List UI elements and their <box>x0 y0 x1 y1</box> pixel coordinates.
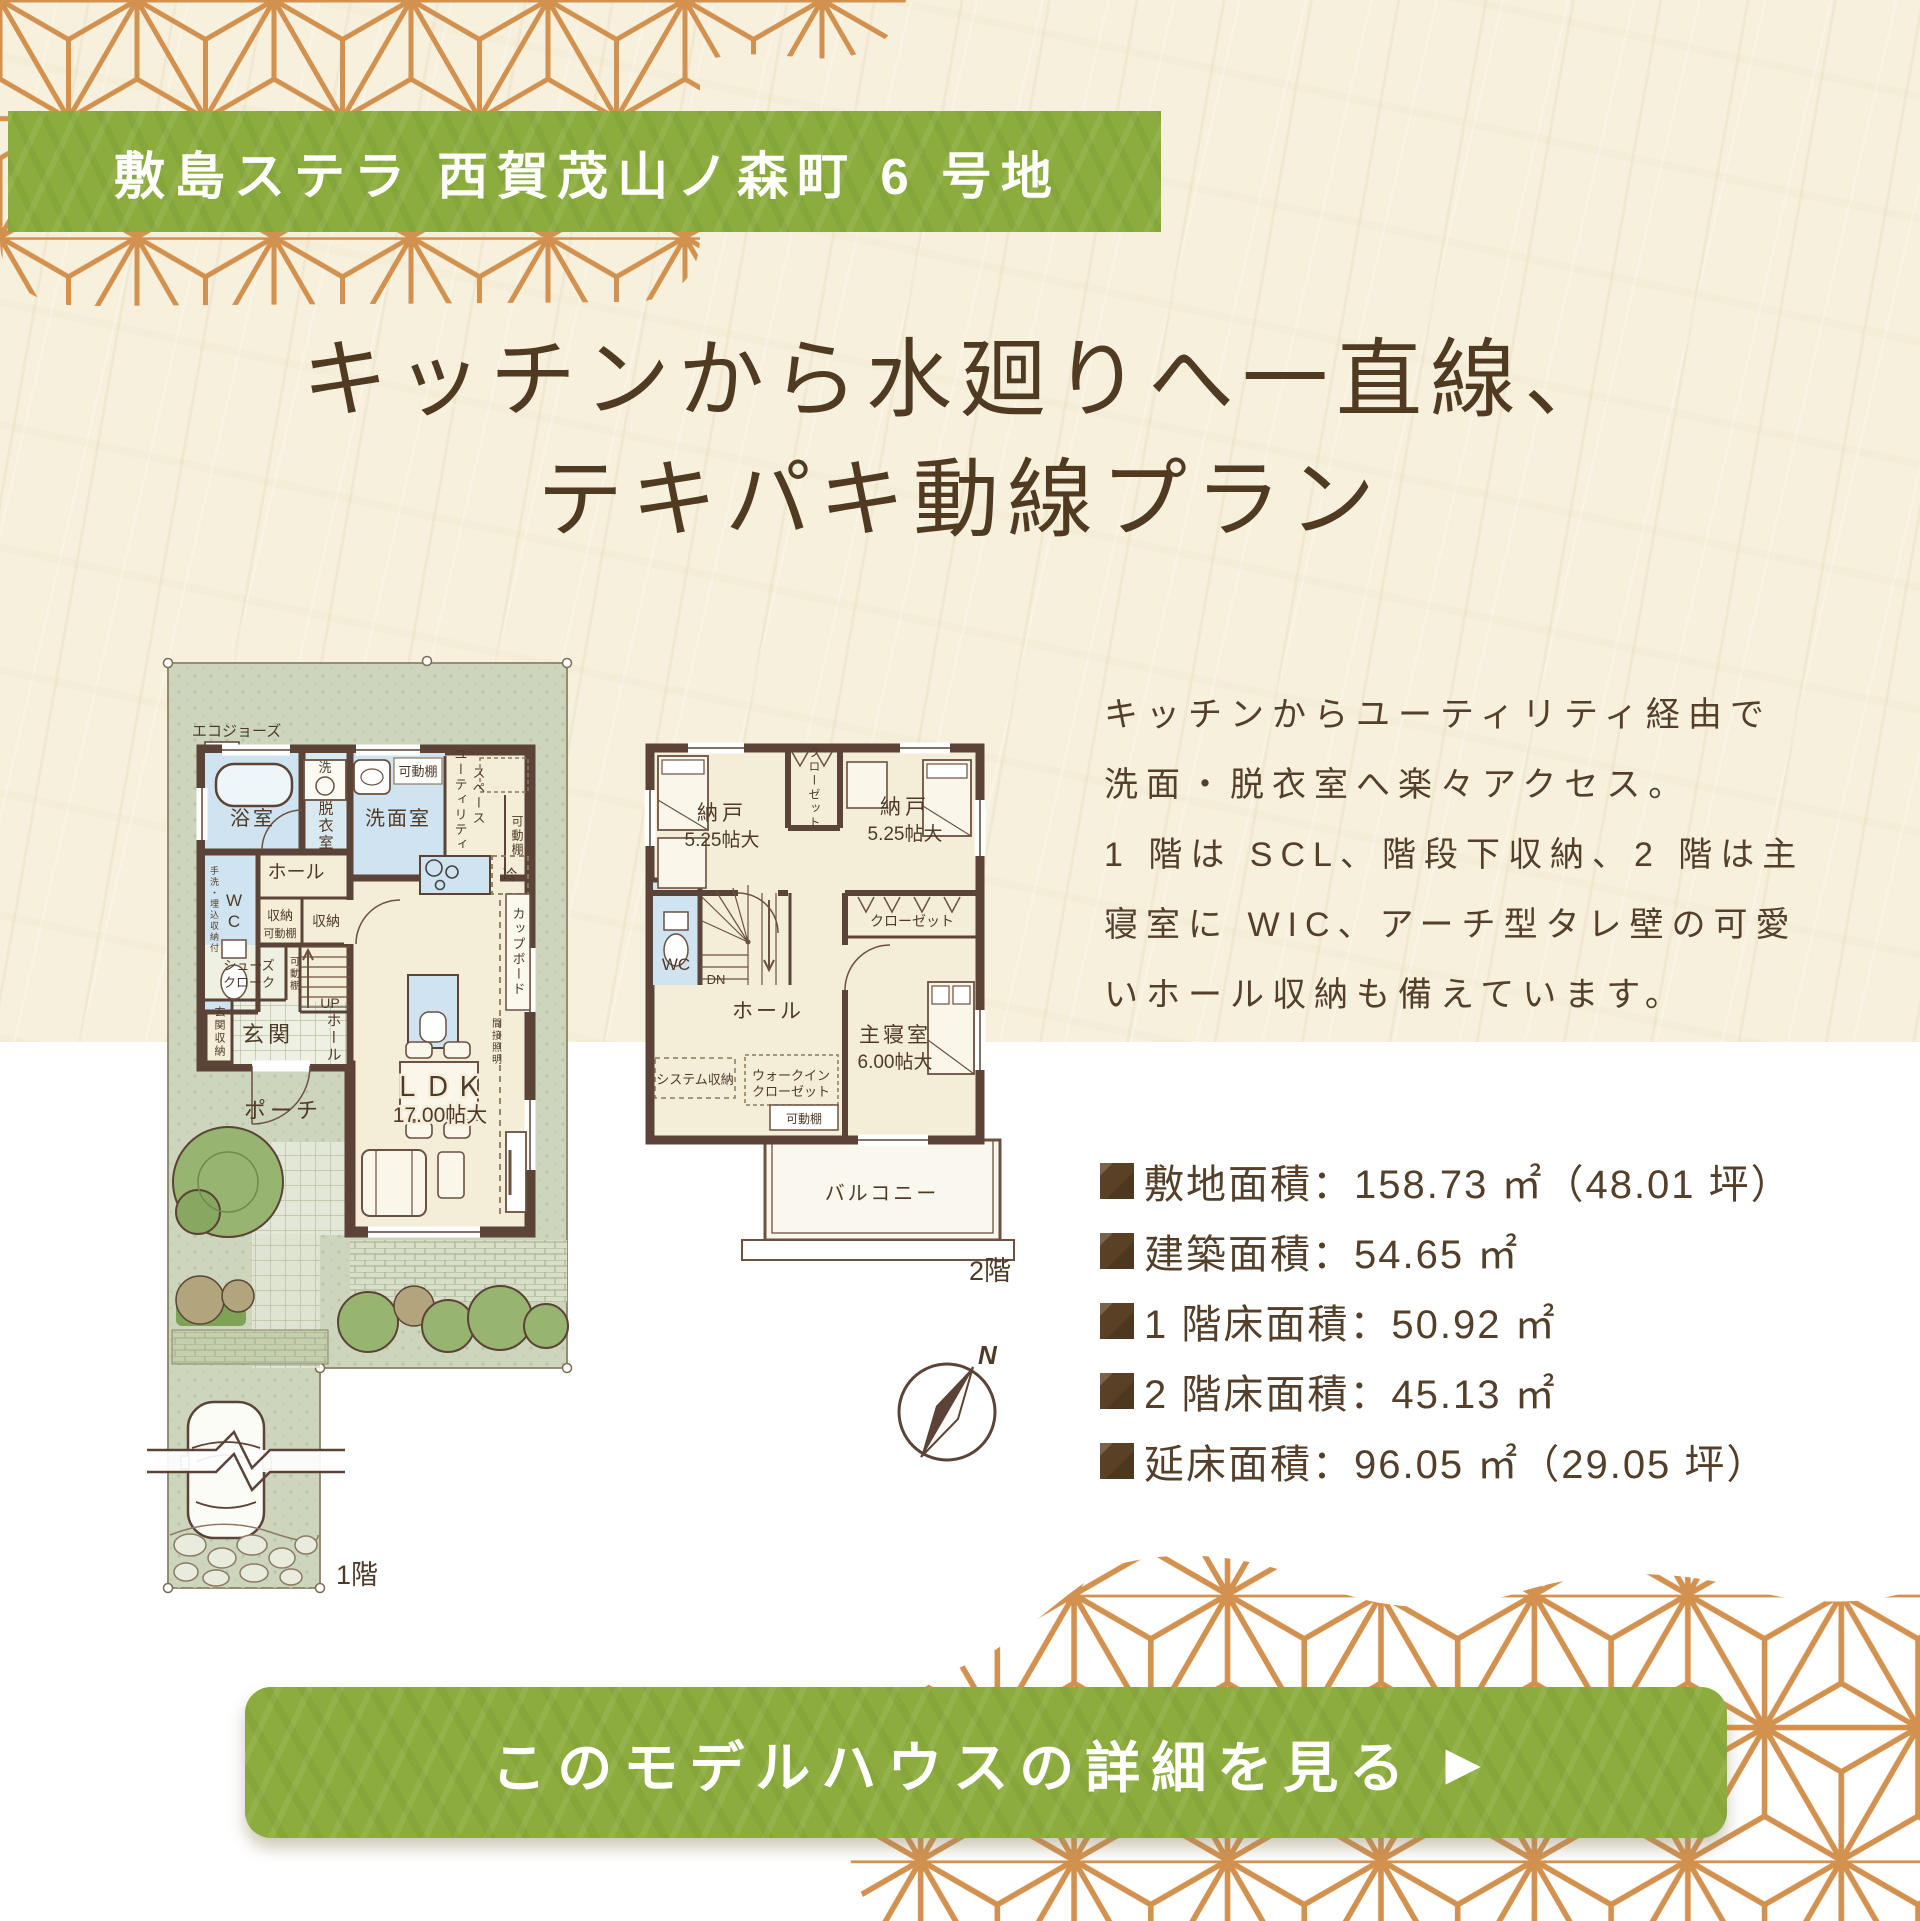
room-label-indirect: 間接照明 <box>490 1018 502 1066</box>
room-label-storage-r: 納戸 <box>880 796 930 819</box>
flyer-page: エコジョーズ <box>0 0 1920 1921</box>
room-label-hall-1f: ホール <box>267 862 324 883</box>
spec-text: 敷地面積：158.73 ㎡（48.01 坪） <box>1144 1152 1793 1210</box>
room-label-storage-b: 収納 <box>312 913 340 929</box>
room-label-storage-a2: 可動棚 <box>264 926 297 940</box>
square-bullet-icon <box>1100 1373 1134 1409</box>
room-label-dressing: 脱衣室 <box>317 801 334 852</box>
description-line: 寝室に WIC、アーチ型タレ壁の可愛 <box>1104 890 1844 960</box>
floor-plan-1f: エコジョーズ <box>147 657 572 1593</box>
room-label-closet-top: クローゼット <box>807 746 821 830</box>
square-bullet-icon <box>1100 1163 1134 1199</box>
headline-line-1: キッチンから水廻りへ一直線、 <box>0 320 1920 440</box>
spec-row: 2 階床面積：45.13 ㎡ <box>1100 1356 1900 1426</box>
room-label-closet-mid: クローゼット <box>870 913 954 929</box>
room-label-storage-l-size: 5.25帖大 <box>685 829 760 851</box>
specs-list: 敷地面積：158.73 ㎡（48.01 坪） 建築面積：54.65 ㎡ 1 階床… <box>1100 1146 1900 1496</box>
square-bullet-icon <box>1100 1443 1134 1479</box>
spec-row: 1 階床面積：50.92 ㎡ <box>1100 1286 1900 1356</box>
room-label-up: UP <box>320 995 339 1011</box>
arrow-right-icon: ▶ <box>1445 1740 1480 1786</box>
room-label-hall-2f: ホール <box>732 1000 804 1023</box>
spec-row: 建築面積：54.65 ㎡ <box>1100 1216 1900 1286</box>
room-label-wc-1f: WC <box>225 891 244 933</box>
room-label-dn: DN <box>707 972 726 987</box>
room-label-shoes-2: クローク <box>223 975 275 990</box>
description-line: キッチンからユーティリティ経由で <box>1104 680 1844 750</box>
banner: 敷島ステラ 西賀茂山ノ森町 6 号地 <box>8 111 1161 232</box>
room-label-wic-2: クローゼット <box>752 1084 830 1099</box>
floor2-caption: 2階 <box>969 1256 1011 1286</box>
room-label-wc-note: 手洗・埋込収納付 <box>209 865 219 954</box>
compass-icon: N <box>899 1340 998 1460</box>
description-line: 洗面・脱衣室へ楽々アクセス。 <box>1104 750 1844 820</box>
room-label-storage-a: 収納 <box>267 908 293 923</box>
room-label-lavatory: 洗面室 <box>365 807 431 830</box>
cta-label: このモデルハウスの詳細を見る <box>491 1723 1415 1803</box>
room-label-utility-2: スペース <box>471 766 486 826</box>
description-line: 1 階は SCL、階段下収納、2 階は主 <box>1104 820 1844 890</box>
spec-row: 敷地面積：158.73 ㎡（48.01 坪） <box>1100 1146 1900 1216</box>
room-label-system: システム収納 <box>656 1072 734 1087</box>
room-label-storage-l: 納戸 <box>697 802 747 825</box>
room-label-uphall: ホール <box>325 1013 342 1064</box>
room-label-fridge: 冷 <box>502 867 517 884</box>
eco-label: エコジョーズ <box>192 723 281 740</box>
room-label-utility-1: ユーティリティ <box>453 748 468 853</box>
room-label-wc-2f: WC <box>662 955 690 974</box>
room-label-wash: 洗 <box>318 760 331 775</box>
spec-text: 2 階床面積：45.13 ㎡ <box>1144 1362 1557 1420</box>
banner-title: 敷島ステラ 西賀茂山ノ森町 6 号地 <box>114 135 1061 209</box>
room-label-shelf-2f: 可動棚 <box>786 1111 822 1126</box>
room-label-bath: 浴室 <box>230 807 276 830</box>
room-label-storage-r-size: 5.25帖大 <box>868 823 943 845</box>
room-label-ldk: ＬＤＫ <box>394 1072 487 1102</box>
headline-line-2: テキパキ動線プラン <box>0 440 1920 560</box>
room-label-porch: ポーチ <box>244 1098 322 1123</box>
room-label-genkan: 玄関 <box>242 1022 294 1047</box>
room-label-shelf-stairs: 可動棚 <box>288 956 300 992</box>
description: キッチンからユーティリティ経由で 洗面・脱衣室へ楽々アクセス。 1 階は SCL… <box>1104 680 1844 1030</box>
room-label-ldk-size: 17.00帖大 <box>393 1104 488 1127</box>
floor-plan-2f: バルコニー <box>645 743 1015 1287</box>
square-bullet-icon <box>1100 1303 1134 1339</box>
room-label-balcony: バルコニー <box>825 1183 940 1205</box>
compass-north-label: N <box>978 1340 998 1370</box>
spec-text: 延床面積：96.05 ㎡（29.05 坪） <box>1144 1432 1768 1490</box>
room-label-genkan-storage: 玄関収納 <box>213 1005 226 1058</box>
room-label-cupboard: カップボード <box>511 907 526 997</box>
room-label-shelf-right: 可動棚 <box>510 815 524 857</box>
room-label-wic-1: ウォークイン <box>752 1068 830 1083</box>
spec-row: 延床面積：96.05 ㎡（29.05 坪） <box>1100 1426 1900 1496</box>
room-label-master: 主寝室 <box>859 1024 931 1047</box>
floor1-caption: 1階 <box>336 1560 378 1590</box>
room-label-shelf-top: 可動棚 <box>398 764 437 779</box>
room-label-master-size: 6.00帖大 <box>858 1051 933 1073</box>
details-cta-button[interactable]: このモデルハウスの詳細を見る ▶ <box>245 1687 1727 1838</box>
description-line: いホール収納も備えています。 <box>1104 960 1844 1030</box>
spec-text: 1 階床面積：50.92 ㎡ <box>1144 1292 1557 1350</box>
square-bullet-icon <box>1100 1233 1134 1269</box>
headline: キッチンから水廻りへ一直線、 テキパキ動線プラン <box>0 320 1920 560</box>
room-label-shoes-1: シューズ <box>223 958 274 973</box>
spec-text: 建築面積：54.65 ㎡ <box>1144 1222 1519 1280</box>
